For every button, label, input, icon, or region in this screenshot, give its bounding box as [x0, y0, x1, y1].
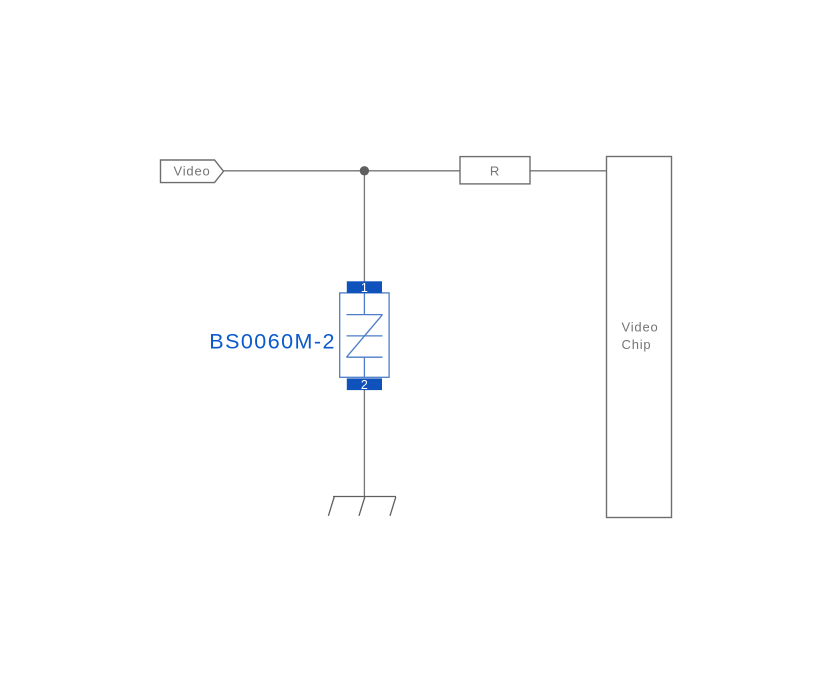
svg-text:Video: Video — [622, 320, 659, 335]
svg-text:2: 2 — [361, 378, 368, 392]
svg-text:BS0060M-2: BS0060M-2 — [209, 329, 336, 353]
svg-text:1: 1 — [361, 281, 368, 295]
svg-text:Chip: Chip — [622, 337, 652, 352]
svg-text:R: R — [490, 164, 500, 179]
svg-text:Video: Video — [173, 164, 210, 179]
